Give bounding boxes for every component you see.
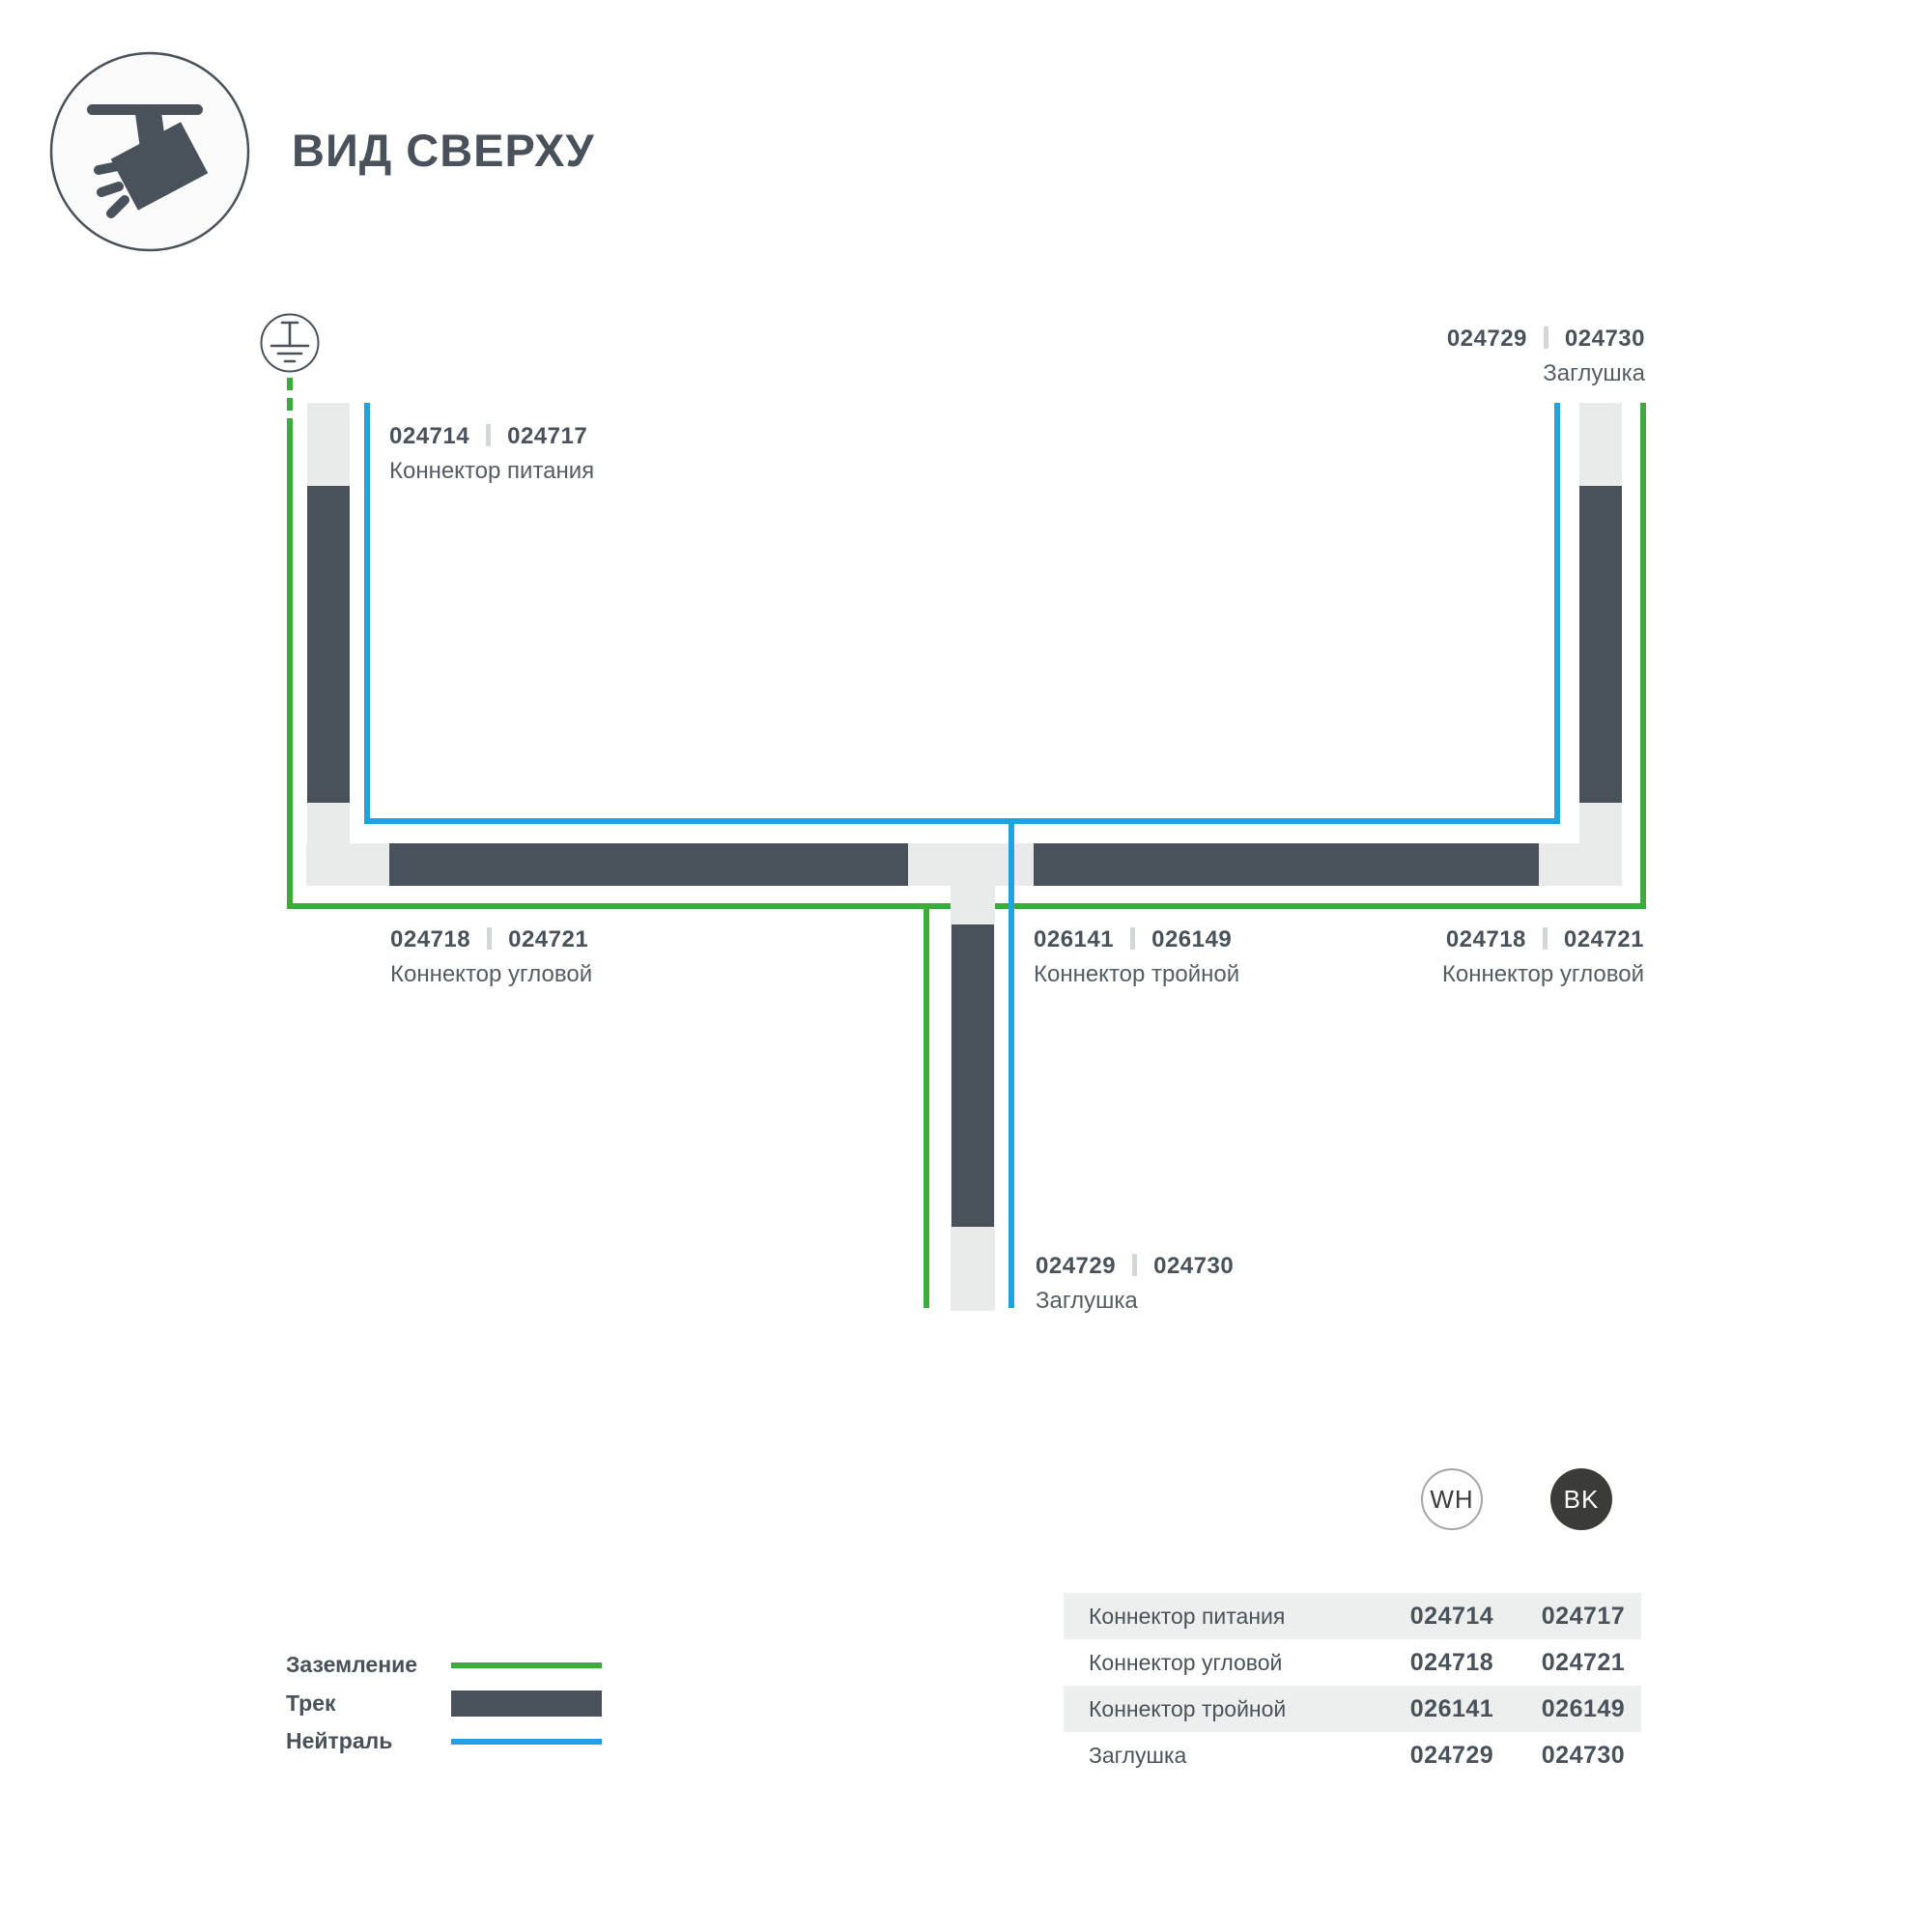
legend-swatch-ground-line [451,1662,602,1668]
track-bar-bottom-right [1034,843,1539,886]
label-caption: Заглушка [1036,1287,1234,1316]
ground-line-left [287,421,293,909]
ground-symbol-icon [260,313,320,373]
part-number-wh: 024718 [1394,1639,1510,1686]
neutral-line-bottom [364,818,1560,824]
part-number-wh: 024729 [1036,1253,1116,1279]
track-bar-bottom-left [389,843,908,886]
part-number-bk: 024721 [1525,1639,1641,1686]
part-number-bk: 024730 [1565,326,1645,352]
part-number-bk: 024717 [1525,1593,1641,1639]
track-bar-left [307,486,350,803]
part-number-bk: 026149 [1525,1686,1641,1732]
separator [1132,1254,1137,1276]
label-corner-connector-left: 024718024721 Коннектор угловой [390,925,592,989]
table-row: Коннектор тройной 026141 026149 [1064,1686,1641,1732]
page: { "header": { "title": "ВИД СВЕРХУ" }, "… [0,0,1932,1932]
legend-swatch-neutral-line [451,1739,602,1745]
legend-swatch-track-bar [451,1690,602,1717]
label-caption: Коннектор угловой [390,960,592,989]
part-name: Заглушка [1064,1732,1394,1778]
page-title: ВИД СВЕРХУ [292,128,595,173]
part-number-wh: 024714 [1394,1593,1510,1639]
label-endcap-top-right: 024729024730 Заглушка [1447,325,1645,388]
part-number-wh: 024718 [390,926,470,952]
table-row: Коннектор питания 024714 024717 [1064,1593,1641,1639]
separator [1130,927,1135,950]
legend-label-track: Трек [286,1690,336,1717]
ground-line-right [1640,403,1646,909]
part-number-bk: 024730 [1153,1253,1234,1279]
parts-table: Коннектор питания 024714 024717 Коннекто… [1064,1593,1641,1778]
legend-label-neutral: Нейтраль [286,1727,392,1754]
label-caption: Заглушка [1447,359,1645,388]
color-variant-black-badge: BK [1550,1468,1612,1530]
separator [1543,927,1548,950]
ground-line-dashed [287,378,293,421]
part-number-wh: 024718 [1446,926,1526,952]
color-variant-white-badge: WH [1421,1468,1483,1530]
label-caption: Коннектор питания [389,457,594,486]
label-caption: Коннектор тройной [1034,960,1239,989]
legend-label-ground: Заземление [286,1651,417,1678]
part-number-wh: 024714 [389,423,469,449]
track-bar-middle [952,924,994,1227]
track-bar-right [1579,486,1622,803]
part-number-bk: 024721 [508,926,588,952]
label-endcap-bottom: 024729024730 Заглушка [1036,1252,1234,1316]
label-caption: Коннектор угловой [1442,960,1644,989]
part-name: Коннектор питания [1064,1593,1394,1639]
neutral-line-right [1554,403,1560,824]
part-number-bk: 026149 [1151,926,1232,952]
table-row: Коннектор угловой 024718 024721 [1064,1639,1641,1686]
part-number-bk: 024730 [1525,1732,1641,1778]
ground-line-tee-branch [923,909,929,1308]
label-tee-connector: 026141026149 Коннектор тройной [1034,925,1239,989]
part-number-bk: 024721 [1564,926,1644,952]
part-number-wh: 026141 [1394,1686,1510,1732]
part-name: Коннектор тройной [1064,1686,1394,1732]
separator [1544,327,1548,349]
part-number-wh: 024729 [1394,1732,1510,1778]
neutral-line-tee-branch [1009,824,1014,1308]
label-corner-connector-right: 024718024721 Коннектор угловой [1442,925,1644,989]
table-row: Заглушка 024729 024730 [1064,1732,1641,1778]
neutral-line-left [364,403,370,824]
label-power-connector: 024714024717 Коннектор питания [389,422,594,486]
part-number-wh: 026141 [1034,926,1114,952]
separator [486,424,491,446]
part-number-wh: 024729 [1447,326,1527,352]
separator [487,927,492,950]
track-spotlight-icon [48,50,251,253]
part-name: Коннектор угловой [1064,1639,1394,1686]
part-number-bk: 024717 [507,423,587,449]
